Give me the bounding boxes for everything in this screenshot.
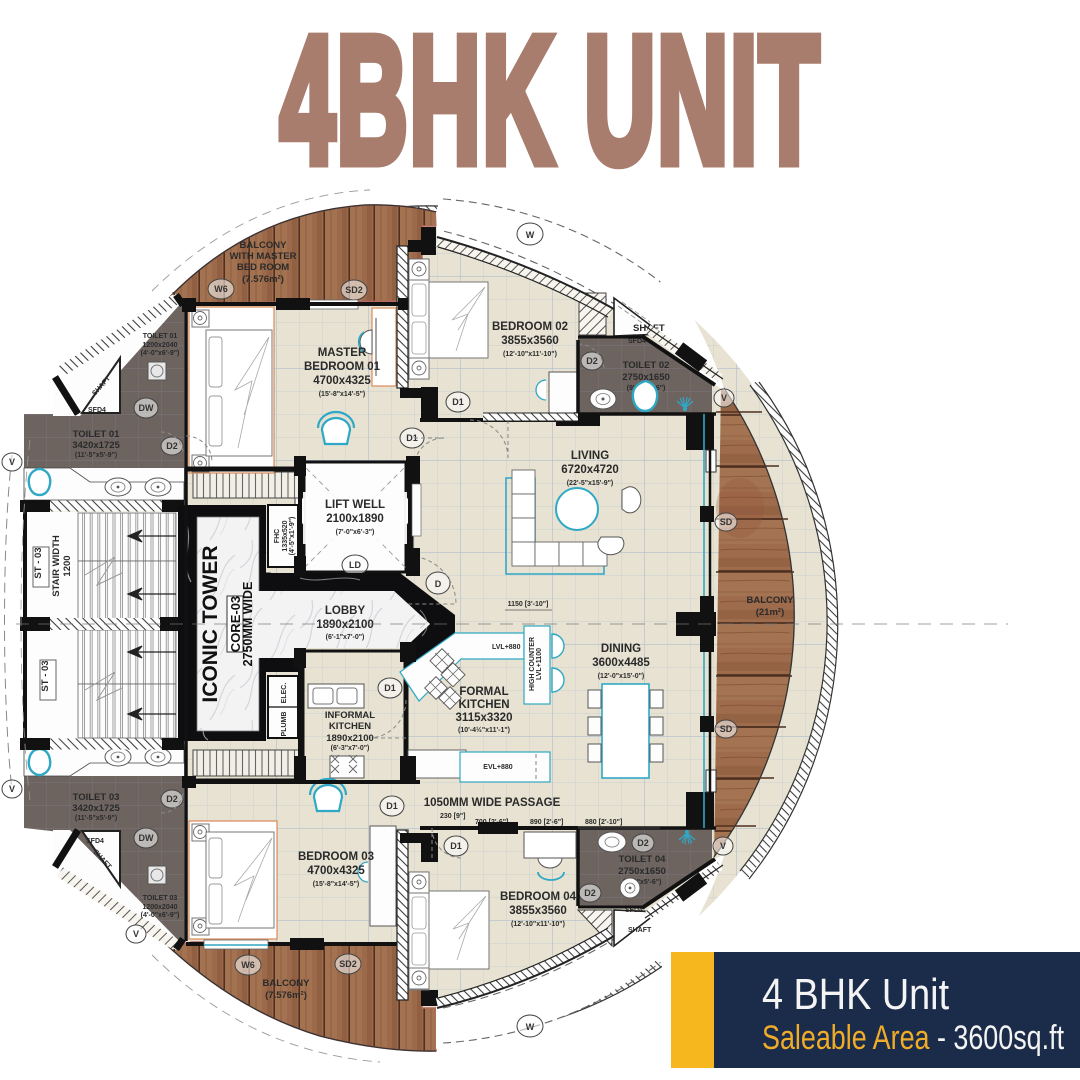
svg-text:BALCONY: BALCONY <box>263 978 311 989</box>
svg-text:TOILET 01: TOILET 01 <box>73 429 121 440</box>
svg-text:FHC: FHC <box>274 529 281 543</box>
svg-text:6720x4720: 6720x4720 <box>561 464 619 476</box>
svg-text:BEDROOM 03: BEDROOM 03 <box>298 851 374 863</box>
svg-text:BEDROOM 04: BEDROOM 04 <box>500 891 577 903</box>
svg-text:(22'-5"x15'-9"): (22'-5"x15'-9") <box>567 480 614 487</box>
svg-text:(15'-8"x14'-5"): (15'-8"x14'-5") <box>319 391 366 398</box>
svg-text:D1: D1 <box>384 683 396 693</box>
svg-text:BALCONY: BALCONY <box>240 240 288 251</box>
svg-text:FORMAL: FORMAL <box>459 686 508 698</box>
svg-text:(10'-4½"x11'-1"): (10'-4½"x11'-1") <box>458 726 510 734</box>
svg-text:MASTER: MASTER <box>318 347 367 359</box>
svg-text:1890x2100: 1890x2100 <box>316 619 374 631</box>
svg-text:(21m²): (21m²) <box>756 607 785 618</box>
svg-text:2750x1650: 2750x1650 <box>618 866 666 877</box>
svg-text:(11'-5"x5'-9"): (11'-5"x5'-9") <box>75 452 117 459</box>
svg-text:BEDROOM 01: BEDROOM 01 <box>304 361 381 373</box>
svg-text:1200x2040: 1200x2040 <box>142 342 177 349</box>
svg-text:SFD4: SFD4 <box>86 838 104 845</box>
svg-text:(6'-3"x7'-0"): (6'-3"x7'-0") <box>331 745 370 752</box>
svg-text:INFORMAL: INFORMAL <box>325 710 375 721</box>
svg-text:1335x520: 1335x520 <box>282 520 289 551</box>
svg-text:(7.576m²): (7.576m²) <box>265 990 307 1001</box>
svg-text:SD2: SD2 <box>345 285 363 295</box>
svg-text:V: V <box>133 929 139 939</box>
svg-text:4700x4325: 4700x4325 <box>313 375 371 387</box>
svg-text:SD2: SD2 <box>339 959 357 969</box>
svg-text:3855x3560: 3855x3560 <box>509 905 567 917</box>
svg-text:ELEC.: ELEC. <box>281 683 288 704</box>
svg-text:BALCONY: BALCONY <box>747 595 795 606</box>
svg-text:BEDROOM 02: BEDROOM 02 <box>492 321 568 333</box>
svg-text:890 [2'-6"]: 890 [2'-6"] <box>530 819 563 826</box>
svg-text:4700x4325: 4700x4325 <box>307 865 365 877</box>
svg-text:(15'-8"x14'-5"): (15'-8"x14'-5") <box>313 881 360 888</box>
svg-text:LIVING: LIVING <box>571 450 609 462</box>
svg-text:880 [2'-10"]: 880 [2'-10"] <box>585 819 622 826</box>
svg-text:D1: D1 <box>386 801 398 811</box>
svg-text:LOBBY: LOBBY <box>325 605 366 617</box>
svg-text:D2: D2 <box>637 838 649 848</box>
svg-text:1200x2040: 1200x2040 <box>142 904 177 911</box>
svg-text:DW: DW <box>139 403 154 413</box>
svg-text:WITH MASTER: WITH MASTER <box>229 251 296 262</box>
svg-text:DINING: DINING <box>601 643 641 655</box>
svg-text:DW: DW <box>139 833 154 843</box>
svg-text:3115x3320: 3115x3320 <box>456 712 513 724</box>
svg-text:TOILET 04: TOILET 04 <box>619 854 667 865</box>
svg-text:ST - 03: ST - 03 <box>40 660 51 691</box>
svg-text:TOILET 02: TOILET 02 <box>623 360 670 371</box>
svg-text:(7.576m²): (7.576m²) <box>242 274 284 285</box>
svg-text:D1: D1 <box>450 841 462 851</box>
svg-text:W: W <box>526 1022 535 1032</box>
svg-text:(11'-5"x5'-9"): (11'-5"x5'-9") <box>75 815 117 822</box>
svg-text:STAIR WIDTH: STAIR WIDTH <box>51 535 62 597</box>
svg-text:D2: D2 <box>584 888 596 898</box>
svg-text:W6: W6 <box>214 284 228 294</box>
svg-text:SD: SD <box>720 724 733 734</box>
svg-text:3420x1725: 3420x1725 <box>72 440 120 451</box>
svg-text:3855x3560: 3855x3560 <box>501 335 559 347</box>
svg-text:LD: LD <box>349 560 361 570</box>
svg-text:1890x2100: 1890x2100 <box>326 733 374 744</box>
svg-text:KITCHEN: KITCHEN <box>329 721 371 732</box>
svg-text:(7'-0"x6'-3"): (7'-0"x6'-3") <box>336 529 375 536</box>
svg-text:1150 [3'-10"]: 1150 [3'-10"] <box>508 601 549 608</box>
svg-text:(4'-0"x6'-9"): (4'-0"x6'-9") <box>141 350 180 357</box>
svg-text:(6'-1"x7'-0"): (6'-1"x7'-0") <box>326 634 365 641</box>
svg-text:1200: 1200 <box>62 555 73 576</box>
svg-text:ST - 03: ST - 03 <box>33 547 44 578</box>
svg-text:EVL+880: EVL+880 <box>483 764 512 771</box>
svg-text:W6: W6 <box>241 960 255 970</box>
svg-text:(12'-0"x15'-0"): (12'-0"x15'-0") <box>598 673 645 680</box>
svg-text:BED ROOM: BED ROOM <box>237 262 289 273</box>
svg-text:4 BHK Unit: 4 BHK Unit <box>762 969 950 1018</box>
svg-text:LIFT WELL: LIFT WELL <box>325 499 385 511</box>
svg-text:(4'-0"x6'-9"): (4'-0"x6'-9") <box>141 912 180 919</box>
svg-text:Saleable Area - 3600sq.ft: Saleable Area - 3600sq.ft <box>762 1018 1064 1057</box>
svg-text:TOILET 03: TOILET 03 <box>143 895 178 902</box>
svg-text:2100x1890: 2100x1890 <box>326 513 384 525</box>
svg-text:3420x1725: 3420x1725 <box>72 803 120 814</box>
svg-text:SFD4: SFD4 <box>88 407 106 414</box>
svg-text:V: V <box>9 457 15 467</box>
svg-text:D1: D1 <box>452 397 464 407</box>
svg-text:D2: D2 <box>166 794 178 804</box>
svg-text:SD: SD <box>720 517 733 527</box>
svg-text:SHAFT: SHAFT <box>628 927 652 934</box>
svg-text:LVL+880: LVL+880 <box>492 644 521 651</box>
svg-text:D2: D2 <box>586 356 598 366</box>
svg-text:(12'-10"x11'-10"): (12'-10"x11'-10") <box>503 351 557 358</box>
svg-text:TOILET 01: TOILET 01 <box>143 333 178 340</box>
svg-text:(4'-5"x1'-9"): (4'-5"x1'-9") <box>289 517 296 556</box>
svg-text:PLUMB: PLUMB <box>281 712 288 737</box>
svg-text:TOILET 03: TOILET 03 <box>73 792 120 803</box>
svg-text:HIGH COUNTER: HIGH COUNTER <box>529 637 536 691</box>
svg-text:V: V <box>9 784 15 794</box>
svg-text:KITCHEN: KITCHEN <box>458 699 509 711</box>
svg-text:4BHK UNIT: 4BHK UNIT <box>280 0 821 200</box>
svg-text:D2: D2 <box>166 441 178 451</box>
svg-text:LVL+1100: LVL+1100 <box>536 648 543 680</box>
svg-text:(12'-10"x11'-10"): (12'-10"x11'-10") <box>511 921 565 928</box>
svg-text:V: V <box>721 393 727 403</box>
svg-text:D: D <box>435 579 442 589</box>
svg-text:1050MM WIDE PASSAGE: 1050MM WIDE PASSAGE <box>424 797 561 809</box>
svg-text:W: W <box>526 230 535 240</box>
svg-text:230 [9"]: 230 [9"] <box>440 813 466 820</box>
svg-text:3600x4485: 3600x4485 <box>592 657 650 669</box>
svg-text:V: V <box>720 841 726 851</box>
